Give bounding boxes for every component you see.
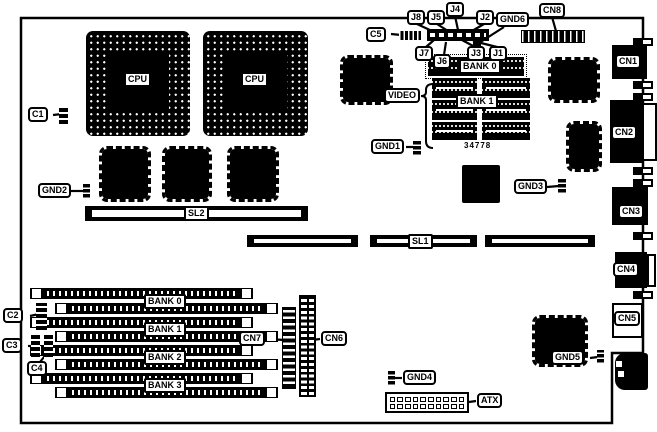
memory-bank0-label: BANK 0 xyxy=(459,59,501,74)
j6-label: J6 xyxy=(433,54,451,69)
simm-bank1-label: BANK 1 xyxy=(144,322,186,337)
ps2-din-connector xyxy=(615,353,648,390)
gnd1-label: GND1 xyxy=(371,139,404,154)
j4-label: J4 xyxy=(446,2,464,17)
edge-nub xyxy=(633,81,641,89)
gnd5-label: GND5 xyxy=(551,350,584,365)
simm-slot xyxy=(30,288,253,299)
chipset-chip-top-right xyxy=(548,57,600,103)
edge-nub xyxy=(633,291,641,299)
cpu-1-label: CPU xyxy=(124,72,151,87)
c5-label: C5 xyxy=(366,27,386,42)
cn6-header xyxy=(299,295,316,397)
simm-slot xyxy=(30,373,253,384)
simm-bank0-label: BANK 0 xyxy=(144,294,186,309)
cn5-label: CN5 xyxy=(614,311,640,326)
gnd6-label: GND6 xyxy=(496,12,529,27)
cn7-header xyxy=(282,307,296,389)
gnd3-pin xyxy=(558,179,566,194)
edge-tab xyxy=(641,291,653,299)
edge-nub xyxy=(633,232,641,240)
gnd4-pin xyxy=(388,371,395,386)
dip-socket xyxy=(482,122,530,140)
simm-latch xyxy=(265,332,276,341)
simm-latch xyxy=(240,374,251,383)
c3-component xyxy=(31,335,40,359)
simm-latch xyxy=(265,388,276,397)
simm-latch xyxy=(240,289,251,298)
simm-bank2-label: BANK 2 xyxy=(144,350,186,365)
part-number: 34778 xyxy=(464,141,491,150)
video-label: VIDEO xyxy=(384,88,420,103)
sl2-label: SL2 xyxy=(184,206,209,221)
simm-slot xyxy=(30,345,253,356)
c1-component xyxy=(59,106,68,126)
gnd5-pin xyxy=(597,350,604,364)
gnd2-pin xyxy=(83,184,90,199)
atx-power-connector xyxy=(385,392,469,413)
j1-label: J1 xyxy=(489,46,507,61)
cn4-label: CN4 xyxy=(613,262,639,277)
memory-bank1-label: BANK 1 xyxy=(456,94,498,109)
cache-chip-1 xyxy=(99,146,151,202)
c2-label: C2 xyxy=(3,308,23,323)
io-chip-right xyxy=(566,121,602,172)
simm-latch xyxy=(57,304,68,313)
gnd1-pin xyxy=(413,140,421,156)
gnd2-label: GND2 xyxy=(38,183,71,198)
cn8-header xyxy=(521,30,585,43)
simm-latch xyxy=(32,289,43,298)
c4-component xyxy=(44,335,53,359)
edge-tab xyxy=(641,93,653,101)
sl1-label: SL1 xyxy=(408,234,433,249)
cache-chip-3 xyxy=(227,146,279,202)
edge-tab xyxy=(641,167,653,175)
j7-label: J7 xyxy=(415,46,433,61)
slot-sl1-segment-3 xyxy=(485,235,595,247)
cn6-label: CN6 xyxy=(321,331,347,346)
atx-label: ATX xyxy=(477,393,502,408)
j5-label: J5 xyxy=(427,10,445,25)
simm-latch xyxy=(265,304,276,313)
c3-label: C3 xyxy=(2,338,22,353)
c5-component xyxy=(399,31,421,40)
slot-sl1-segment-1 xyxy=(247,235,358,247)
c4-label: C4 xyxy=(27,361,47,376)
j2-label: J2 xyxy=(476,10,494,25)
gnd3-label: GND3 xyxy=(514,179,547,194)
cn3-label: CN3 xyxy=(618,204,644,219)
cn1-label: CN1 xyxy=(615,54,641,69)
simm-bank3-label: BANK 3 xyxy=(144,378,186,393)
c2-component xyxy=(36,303,47,332)
j8-label: J8 xyxy=(407,10,425,25)
gnd4-label: GND4 xyxy=(403,370,436,385)
simm-latch xyxy=(240,318,251,327)
cn2-label: CN2 xyxy=(611,125,637,140)
edge-tab xyxy=(641,232,653,240)
simm-latch xyxy=(265,360,276,369)
cn7-label: CN7 xyxy=(239,331,265,346)
dip-socket xyxy=(432,122,477,140)
cn8-label: CN8 xyxy=(539,3,565,18)
simm-latch xyxy=(240,346,251,355)
edge-tab xyxy=(641,81,653,89)
edge-nub xyxy=(633,167,641,175)
c1-label: C1 xyxy=(28,107,48,122)
simm-slot xyxy=(30,317,253,328)
cache-chip-2 xyxy=(162,146,212,202)
simm-latch xyxy=(57,388,68,397)
edge-tab xyxy=(641,179,653,187)
simm-latch xyxy=(57,332,68,341)
chip-center xyxy=(462,165,500,203)
j3-label: J3 xyxy=(467,46,485,61)
cn2-port-outline xyxy=(642,103,657,161)
cn4-port-outline xyxy=(647,254,656,287)
motherboard-location-diagram: CPU CPU SL2 SL1 BANK 0 BANK 1 34778 BANK… xyxy=(0,0,657,432)
cpu-2-label: CPU xyxy=(241,72,268,87)
edge-nub xyxy=(633,179,641,187)
simm-latch xyxy=(57,360,68,369)
